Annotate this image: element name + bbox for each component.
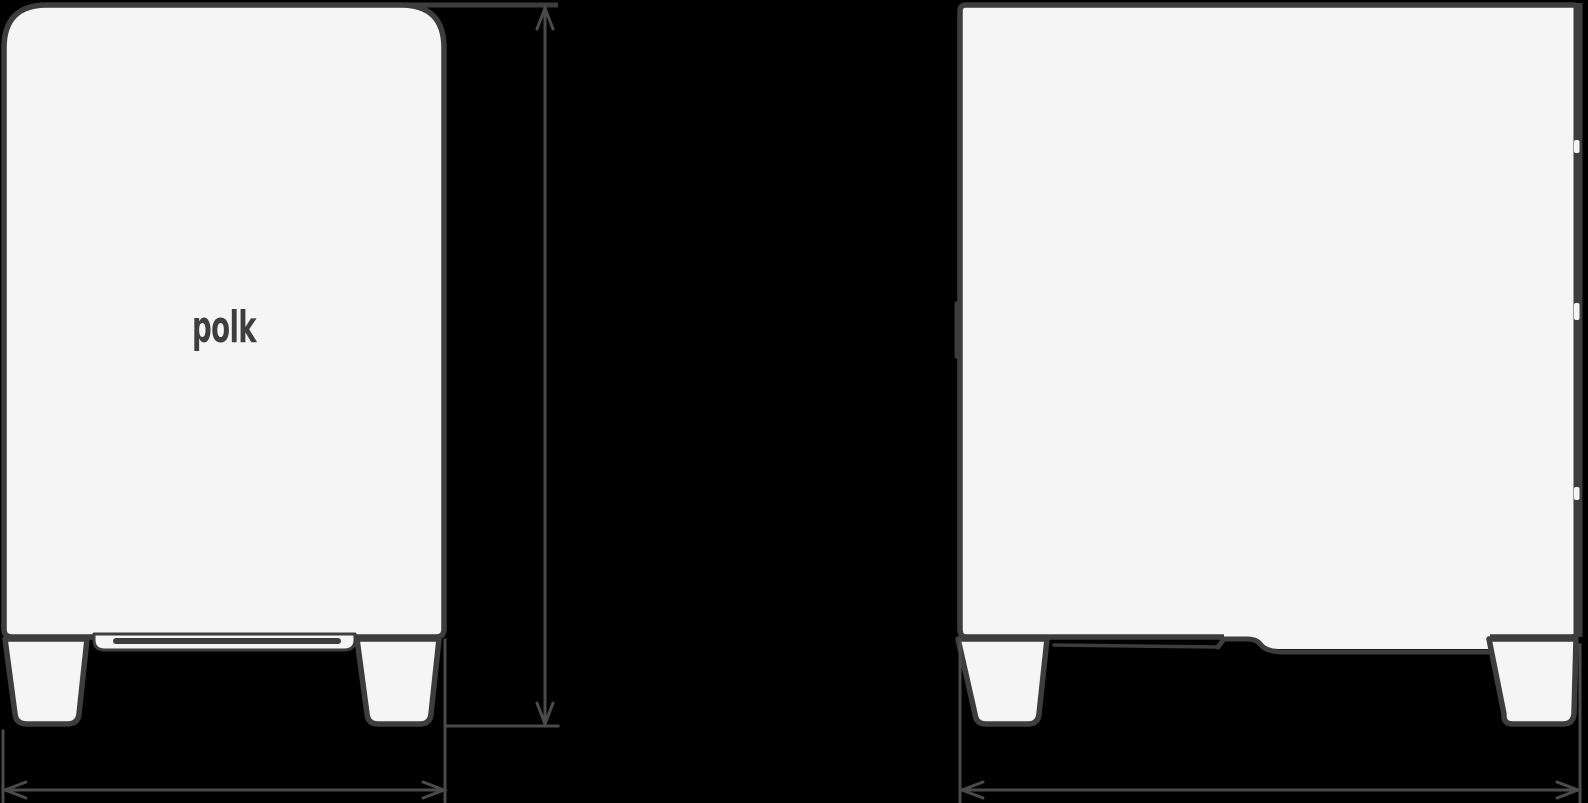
side-rear-notch-middle [1574, 303, 1580, 320]
side-rear-notch-top [1574, 140, 1580, 153]
dimension-drawing-canvas: polk [0, 0, 1588, 803]
side-width-dimension [960, 640, 1580, 803]
side-left-foot [958, 639, 1047, 724]
side-tray-far-edge [1054, 645, 1218, 647]
side-view [955, 3, 1580, 724]
side-cabinet [960, 5, 1579, 637]
polk-logo: polk [192, 302, 258, 353]
front-left-foot [5, 639, 87, 724]
front-view: polk [4, 5, 444, 724]
side-rear-notch-bottom [1574, 487, 1580, 500]
front-right-foot [357, 639, 439, 724]
front-port-slot [113, 638, 341, 644]
subwoofer-dimension-drawing: polk [0, 0, 1588, 803]
side-right-foot [1489, 639, 1576, 724]
side-front-seam [955, 301, 963, 359]
